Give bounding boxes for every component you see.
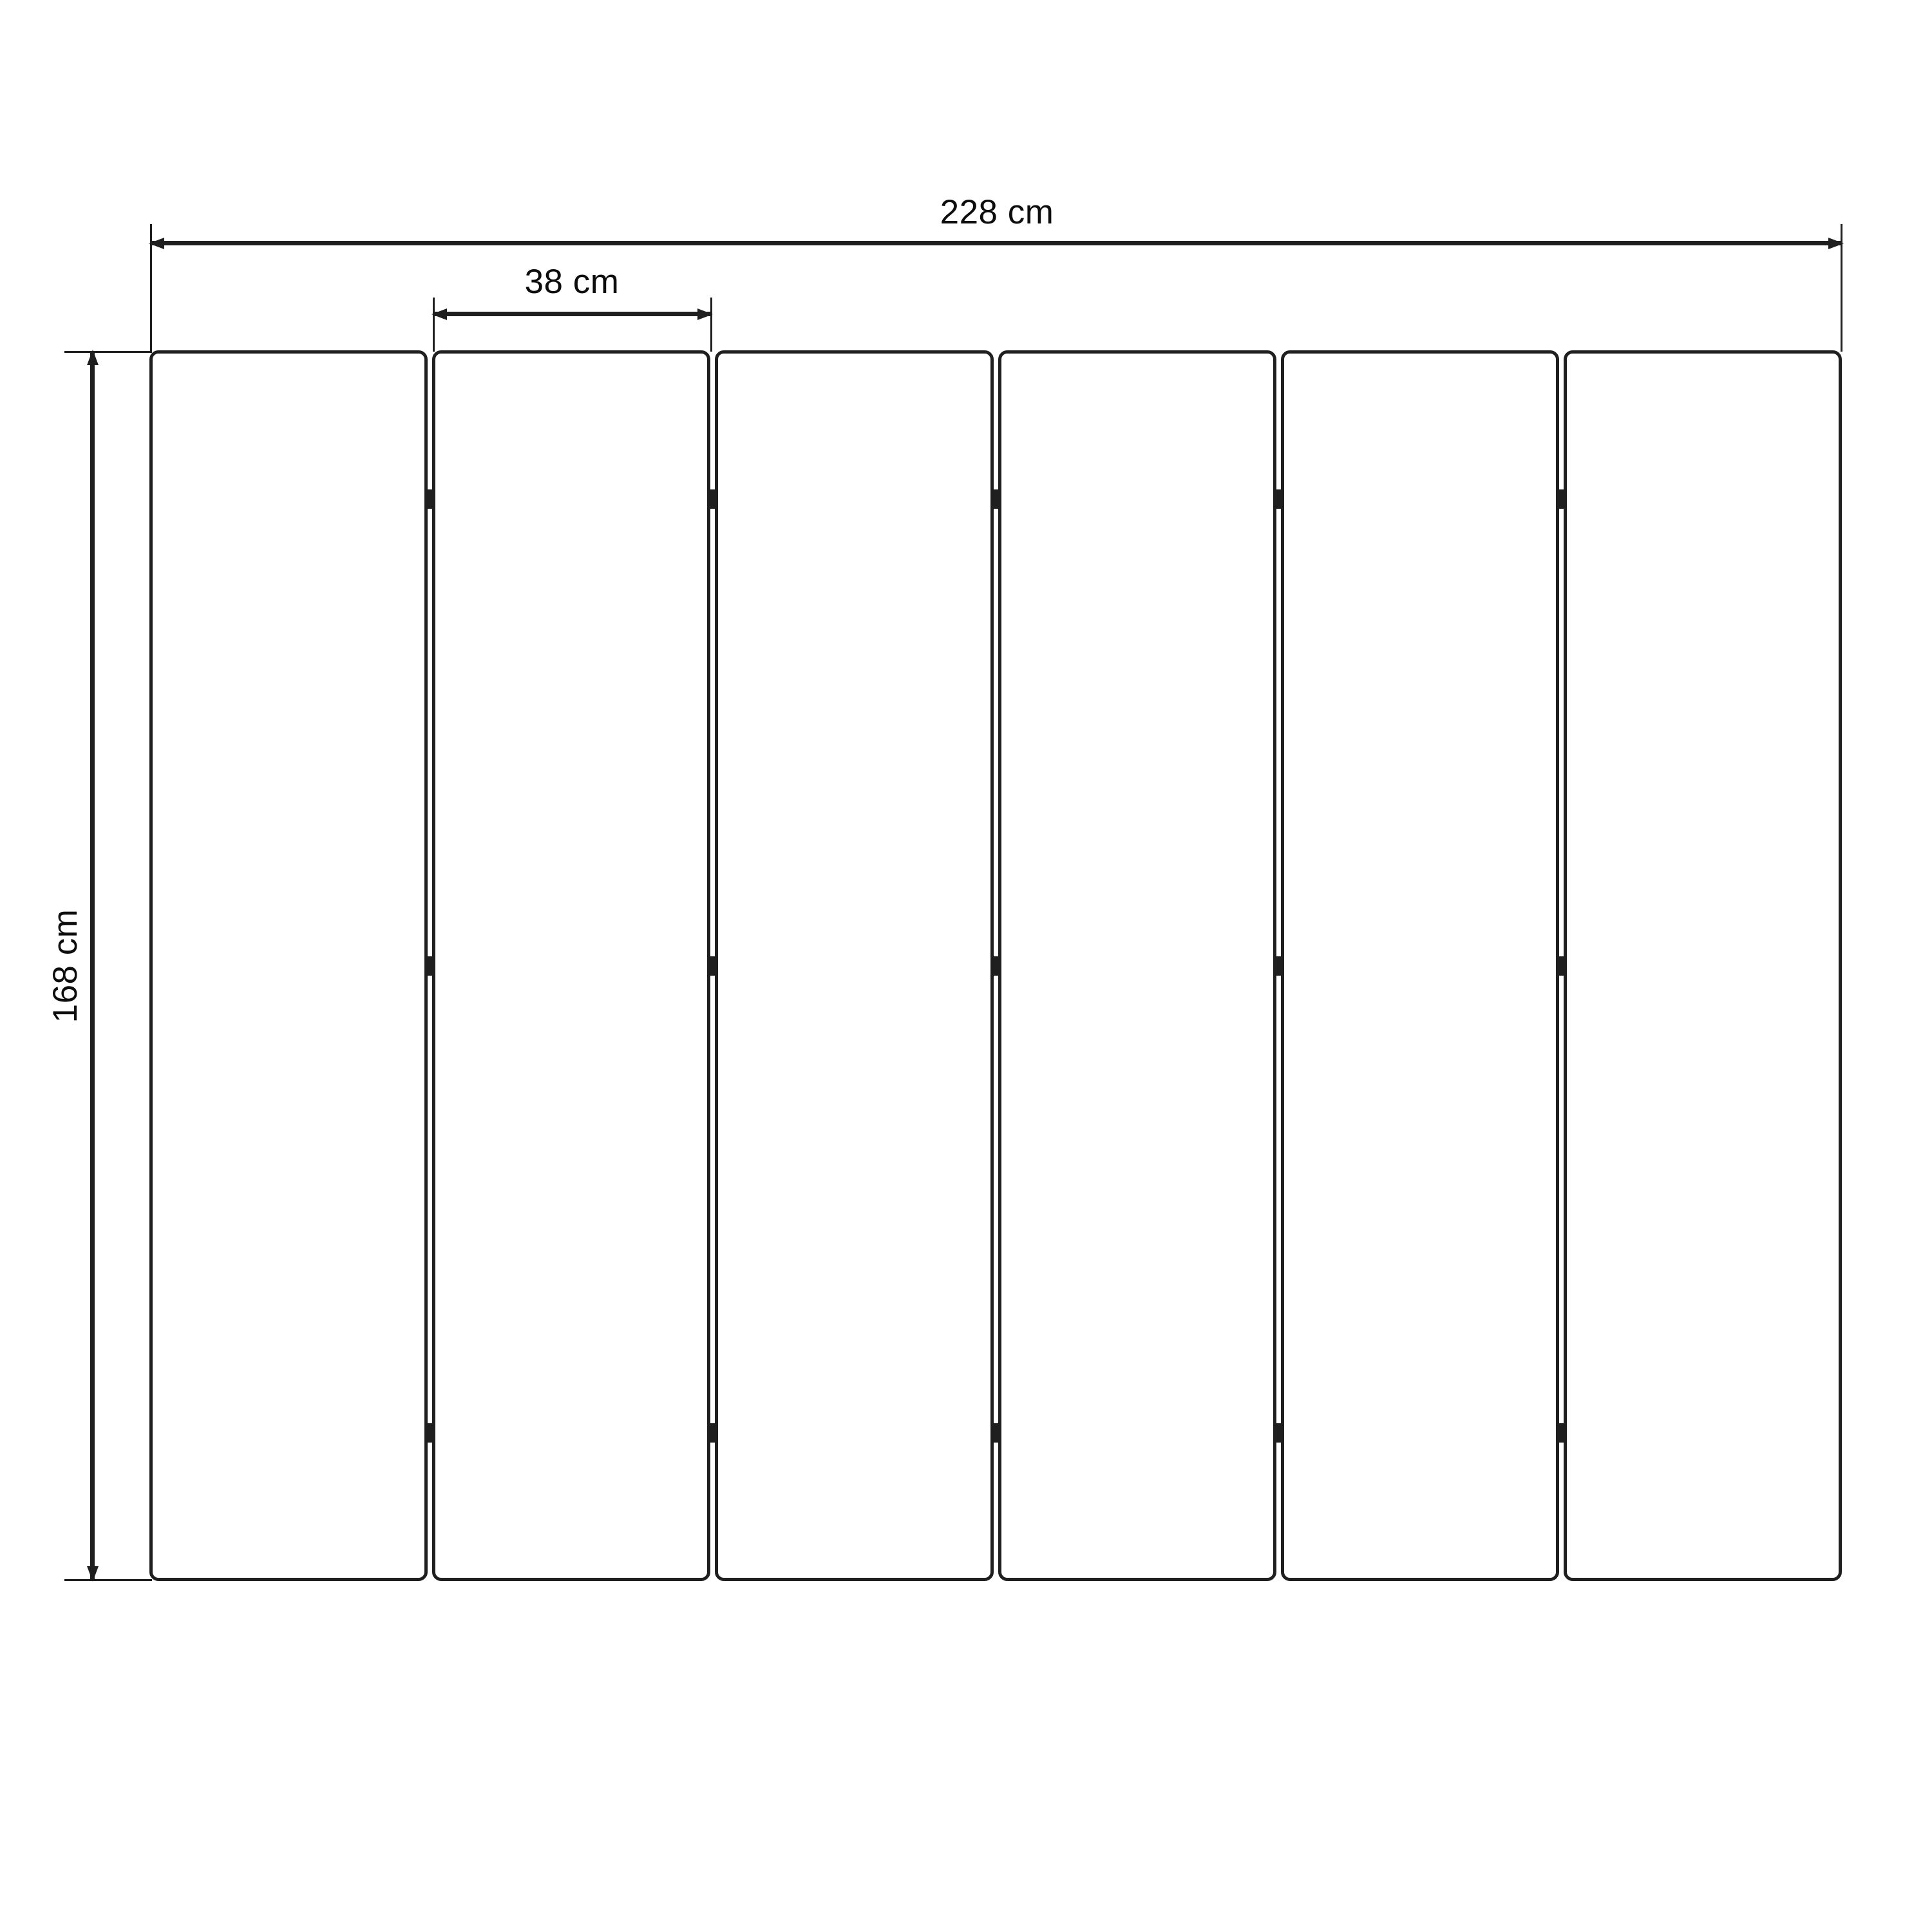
arrowhead-up-icon xyxy=(87,350,99,365)
panel xyxy=(1281,350,1559,1581)
arrowhead-left-icon xyxy=(149,238,164,249)
hinge xyxy=(991,956,1001,976)
hinge xyxy=(1274,956,1283,976)
technical-drawing-canvas: 228 cm 38 cm 168 cm xyxy=(0,0,1932,1932)
arrowhead-right-icon xyxy=(697,308,713,320)
height-label: 168 cm xyxy=(46,909,86,1023)
panels-row xyxy=(149,350,1842,1581)
hinge xyxy=(425,956,435,976)
hinge xyxy=(1274,1423,1283,1443)
extension-line-right xyxy=(710,298,712,352)
dimension-line-total-width xyxy=(151,241,1842,245)
panel xyxy=(998,350,1276,1581)
hinge xyxy=(1274,489,1283,509)
hinge xyxy=(425,1423,435,1443)
arrowhead-left-icon xyxy=(431,308,447,320)
hinge xyxy=(708,1423,717,1443)
hinge xyxy=(991,489,1001,509)
arrowhead-right-icon xyxy=(1828,238,1844,249)
hinge xyxy=(708,956,717,976)
panel xyxy=(715,350,993,1581)
hinge xyxy=(1557,1423,1566,1443)
dimension-line-height xyxy=(90,352,95,1580)
extension-line-left xyxy=(433,298,435,352)
panel xyxy=(432,350,710,1581)
hinge xyxy=(425,489,435,509)
hinge xyxy=(1557,489,1566,509)
hinge xyxy=(991,1423,1001,1443)
panel-width-label: 38 cm xyxy=(525,262,620,302)
hinge xyxy=(708,489,717,509)
extension-line-top xyxy=(64,351,152,353)
panel xyxy=(1564,350,1842,1581)
hinge xyxy=(1557,956,1566,976)
dimension-line-panel-width xyxy=(433,312,711,316)
arrowhead-down-icon xyxy=(87,1566,99,1582)
extension-line-bottom xyxy=(64,1579,152,1581)
panel xyxy=(149,350,428,1581)
total-width-label: 228 cm xyxy=(940,193,1054,232)
